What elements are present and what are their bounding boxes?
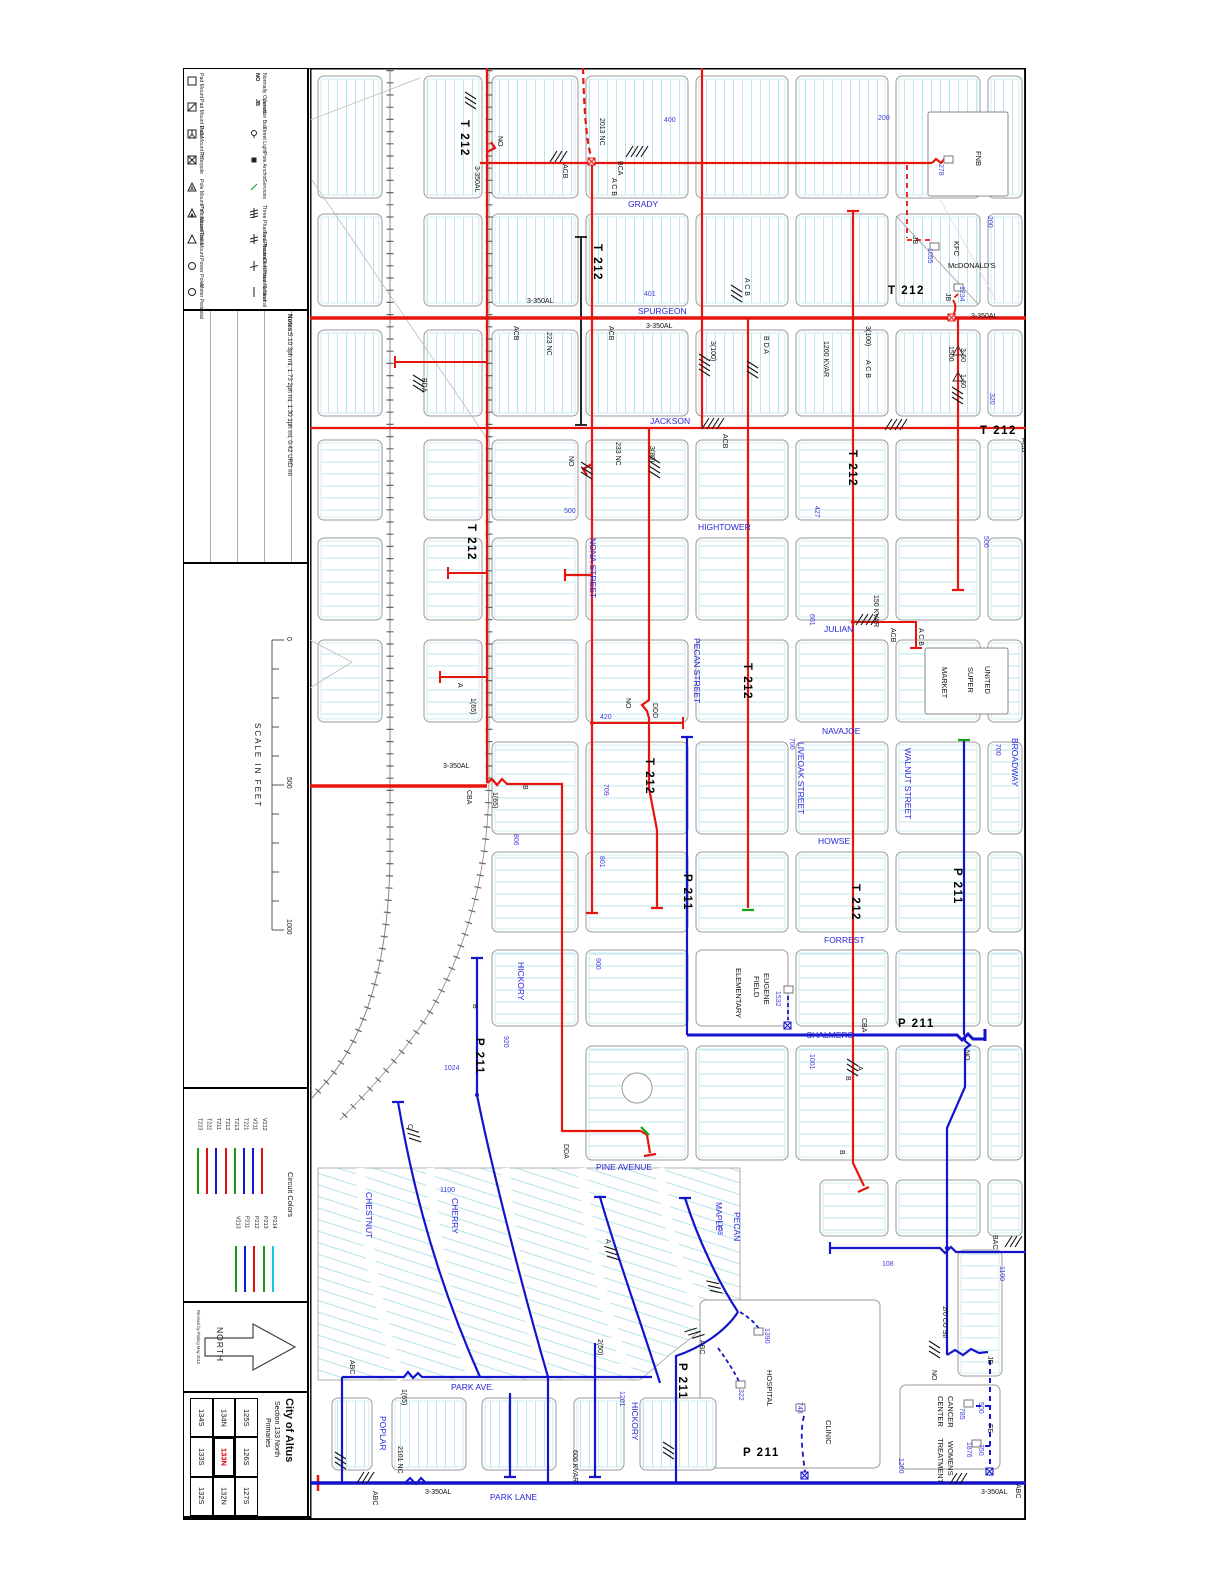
- street-label: SPURGEON: [638, 306, 687, 316]
- street-label: PINE AVENUE: [596, 1162, 652, 1172]
- revision-note: Revised by Plating May 2015: [196, 1310, 201, 1365]
- block-number: 1055: [926, 248, 933, 264]
- circuit-color-label: V212: [260, 1118, 265, 1131]
- street-label: PARK LANE: [490, 1492, 537, 1502]
- legend-item-label: Junction Box: [261, 99, 266, 129]
- circuit-label: T 212: [643, 758, 655, 795]
- annotation: 1200 KVAR: [822, 341, 829, 377]
- legend-item-label: Services: [261, 179, 266, 199]
- block-number: 785: [958, 1408, 965, 1420]
- parcels: [427, 333, 479, 413]
- block-number: 700: [788, 738, 795, 750]
- parcels: [395, 1401, 463, 1467]
- parcels: [495, 541, 575, 617]
- annotation: 3-350AL: [473, 166, 480, 193]
- street-label: HICKORY: [516, 962, 526, 1001]
- parcels: [427, 217, 479, 303]
- parcels: [427, 443, 479, 517]
- parcels: [961, 1253, 999, 1373]
- annotation: A C B: [864, 360, 871, 378]
- block-number: 1100: [440, 1187, 455, 1194]
- legend-symbol-sl: [249, 126, 260, 137]
- scale-title: SCALE IN FEET: [253, 723, 262, 808]
- parcels: [321, 217, 379, 303]
- map-sheet: Notes: 5.10 3ph mi, 1.73 2ph mi, 1.30 1p…: [0, 0, 1224, 1584]
- annotation: NO: [930, 1370, 937, 1381]
- parcels: [899, 333, 977, 413]
- annotation: ACB: [1020, 438, 1026, 453]
- legend-symbol-tri: [187, 231, 198, 242]
- annotation: A C B: [610, 178, 617, 196]
- circuit-label: P 211: [676, 1363, 688, 1400]
- parcels: [991, 1049, 1019, 1157]
- block-number: 601: [808, 614, 815, 626]
- parcels: [495, 217, 575, 303]
- circuit-label: T 212: [458, 120, 470, 157]
- street-label: JACKSON: [650, 416, 690, 426]
- circuit-label: P 211: [743, 1447, 780, 1459]
- legend-symbol-sv: [249, 179, 260, 190]
- legend-symbol-cir: [187, 258, 198, 269]
- section-cell-132S: 132S: [190, 1477, 213, 1516]
- annotation: NO: [567, 456, 574, 467]
- street-label: NAVAJOE: [822, 726, 861, 736]
- annotation: 3-350AL: [443, 763, 470, 770]
- parcels: [699, 1049, 785, 1157]
- circuit-label: P 211: [473, 1038, 485, 1075]
- building-label: KFC: [952, 241, 961, 257]
- parcels: [991, 443, 1019, 517]
- circuit-color-swatch: [272, 1246, 274, 1292]
- parcels: [799, 79, 885, 195]
- parcels: [589, 541, 685, 617]
- sheet-subtitle: Section 133 North: [273, 1401, 280, 1457]
- building-label: FNB: [974, 151, 983, 166]
- building-label: ELEMENTARY: [734, 968, 743, 1018]
- annotation: NO: [624, 698, 631, 709]
- legend-symbol-trid: [187, 205, 198, 216]
- annotation: 3-350AL: [981, 1489, 1008, 1496]
- street-label: WALNUT STREET: [903, 748, 913, 819]
- building-label: CENTER: [936, 1396, 945, 1427]
- street-label: HIGHTOWER: [698, 522, 751, 532]
- circuit-color-swatch: [225, 1148, 227, 1194]
- circuit-color-swatch: [206, 1148, 208, 1194]
- parcels: [899, 1183, 977, 1233]
- annotation: 2101 NC: [396, 1446, 403, 1474]
- parcels: [799, 643, 885, 719]
- street-label: HOWSE: [818, 836, 850, 846]
- block-number: 709: [602, 784, 609, 796]
- block-number: 750: [977, 1444, 984, 1456]
- building-label: UNITED: [983, 666, 992, 695]
- circuit-color-label: T213: [233, 1118, 238, 1130]
- annotation: ABC: [1014, 1484, 1021, 1498]
- annotation: 3(100): [709, 341, 716, 361]
- street-label: JULIAN: [824, 624, 853, 634]
- street-label: PARK AVE.: [451, 1382, 494, 1392]
- circuit-label: T 212: [741, 663, 753, 700]
- annotation: 3-350AL: [527, 298, 554, 305]
- block-number: 278: [937, 164, 944, 176]
- street-label: GRADY: [628, 199, 659, 209]
- legend-symbol-triy: [187, 179, 198, 190]
- circuit-color-label: T211: [214, 1118, 219, 1130]
- parcels: [335, 1401, 369, 1467]
- parcels: [799, 855, 885, 929]
- building-label: EUGENE: [762, 973, 771, 1005]
- legend-item-label: Neutral: [261, 284, 266, 301]
- circuit-color-label: T222: [205, 1118, 210, 1130]
- legend-symbol-cir: [187, 284, 198, 295]
- building-label: MARKET: [940, 667, 949, 699]
- block-number: 1234: [958, 286, 965, 302]
- annotation: A: [456, 683, 463, 688]
- annotation: JB: [911, 236, 918, 245]
- circuit-color-swatch: [252, 1148, 254, 1194]
- street-label: CHERRY: [450, 1198, 460, 1234]
- north-arrow: NORTH Revised by Plating May 2015: [183, 1302, 308, 1391]
- circuit-color-swatch: [235, 1246, 237, 1292]
- parcels: [589, 443, 685, 517]
- annotation: JB: [944, 293, 951, 302]
- section-cell-133S: 133S: [190, 1437, 213, 1476]
- block-number: 700: [994, 744, 1001, 756]
- circuit-color-label: P212: [252, 1216, 257, 1229]
- parcels: [699, 79, 785, 195]
- parcels: [799, 745, 885, 831]
- section-cell-125S: 125S: [235, 1398, 258, 1437]
- annotation: JB: [986, 1356, 993, 1365]
- annotation: 223 NC: [545, 332, 552, 356]
- block-number: 1100: [998, 1266, 1005, 1281]
- annotation: BDA: [420, 378, 427, 393]
- block-number: 1532: [774, 991, 781, 1007]
- section-cell-134S: 134S: [190, 1398, 213, 1437]
- circuit-label: P 211: [898, 1018, 935, 1030]
- annotation: 1-50: [959, 374, 966, 388]
- legend-symbol-sqx: [187, 152, 198, 163]
- street-label: LIVEOAK STREET: [796, 742, 806, 814]
- section-cell-132N: 132N: [213, 1477, 236, 1516]
- circuit-label: P 211: [681, 874, 693, 911]
- block-number: 200: [878, 115, 890, 122]
- annotation: 2013 NC: [598, 118, 605, 146]
- legend-symbol-pa: [249, 152, 260, 163]
- legend-symbol-NO: NO: [249, 73, 260, 84]
- circuit-color-swatch: [234, 1148, 236, 1194]
- parcels: [799, 443, 885, 517]
- annotation: A C B: [743, 278, 750, 296]
- notes: Notes: 5.10 3ph mi, 1.73 2ph mi, 1.30 1p…: [284, 314, 306, 559]
- scale-tick: 0: [285, 637, 292, 641]
- cul-de-sac: [622, 1073, 652, 1103]
- section-cell-127S: 127S: [235, 1477, 258, 1516]
- parcels: [589, 333, 685, 413]
- street-label: NONA STREET: [588, 538, 598, 598]
- building-label: WOMENS: [946, 1441, 955, 1476]
- block-number: 1201: [618, 1391, 625, 1407]
- legend-item-label: Pad Mount: [198, 73, 203, 98]
- scale-tick: 500: [285, 777, 292, 789]
- parcels: [991, 953, 1019, 1023]
- parcels: [321, 443, 379, 517]
- annotation: ABC: [348, 1360, 355, 1374]
- annotation: A: [856, 1066, 863, 1071]
- circuit-color-swatch: [243, 1148, 245, 1194]
- annotation: 3(80): [648, 446, 655, 462]
- annotation: NO: [963, 1050, 970, 1061]
- circuit-label: T 212: [888, 285, 925, 297]
- parcels: [899, 541, 977, 617]
- legend-symbol-h3: [249, 205, 260, 216]
- street-label: PECAN STREET: [692, 638, 702, 703]
- street-label: CHESTNUT: [364, 1192, 374, 1238]
- annotation: 2(50): [596, 1339, 603, 1355]
- street-label: FORREST: [824, 935, 865, 945]
- annotation: CBA: [860, 1018, 867, 1033]
- subdivision-area: [318, 1168, 740, 1380]
- annotation: 1(65): [469, 698, 476, 714]
- building-label: FIELD: [752, 976, 761, 998]
- legend-item-label: Riserpole: [198, 152, 203, 174]
- annotation: 3-350AL: [646, 323, 673, 330]
- block-number: 1390: [763, 1328, 770, 1344]
- annotation: B D A: [762, 336, 769, 354]
- block-number: 500: [982, 536, 989, 548]
- circuit-color-label: T223: [196, 1118, 201, 1130]
- parcels: [799, 333, 885, 413]
- annotation: B: [844, 1076, 851, 1081]
- sheet-type: Primaries: [264, 1418, 271, 1448]
- annotation: 3(100): [864, 326, 871, 346]
- legend-symbol-JB: JB: [249, 99, 260, 110]
- block-number: 400: [664, 117, 676, 124]
- annotation: A C B: [917, 628, 924, 646]
- legend-item-label: Pole Anchor: [261, 152, 266, 180]
- parcels: [495, 643, 575, 719]
- annotation: ACB: [512, 326, 519, 341]
- circuit-label: T 212: [849, 884, 861, 921]
- block-number: 920: [502, 1036, 509, 1048]
- legend-symbol-sqy: [187, 126, 198, 137]
- block-number: 401: [644, 291, 656, 298]
- street-label: CHALMERS: [806, 1030, 854, 1040]
- circuit-color-label: V211: [251, 1118, 256, 1130]
- block-number: 743: [796, 1402, 803, 1414]
- street-label: BROADWAY: [1010, 738, 1020, 787]
- parcels: [495, 333, 575, 413]
- annotation: A: [604, 1239, 611, 1244]
- divider: [183, 1391, 308, 1393]
- notes-title: Notes:: [286, 314, 293, 333]
- block-number: 500: [564, 508, 576, 515]
- parcels: [699, 541, 785, 617]
- parcels: [899, 953, 977, 1023]
- circuit-label: P 211: [951, 868, 963, 905]
- building-label: McDONALD'S: [948, 261, 996, 270]
- parcels: [899, 855, 977, 929]
- parcels: [799, 953, 885, 1023]
- building-label: TREATMENT: [936, 1438, 945, 1484]
- annotation: 1500: [947, 346, 954, 362]
- legend-symbol-sqd: [187, 99, 198, 110]
- section-cell-134N: 134N: [213, 1398, 236, 1437]
- legend-item-label: Power Poles: [198, 258, 203, 287]
- circuit-color-label: P211: [243, 1216, 248, 1228]
- annotation: 1(65): [491, 792, 498, 808]
- annotation: 3-50: [959, 348, 966, 362]
- annotation: 600 KVAR: [571, 1450, 578, 1482]
- annotation: B: [471, 1004, 478, 1009]
- parcels: [495, 443, 575, 517]
- annotation: ACB: [721, 434, 728, 449]
- legend-symbol-h2: [249, 231, 260, 242]
- street-label: HICKORY: [630, 1402, 640, 1441]
- annotation: 2/0 CU Str: [941, 1306, 948, 1339]
- annotation: ACB: [889, 628, 896, 643]
- legend-item-label: Street Light: [261, 126, 266, 153]
- building-label: CANCER: [946, 1396, 955, 1428]
- annotation: ABC: [371, 1491, 378, 1505]
- circuit-label: T 212: [591, 244, 603, 281]
- parcels: [321, 79, 379, 195]
- annotation: C: [406, 1124, 413, 1129]
- annotation: 233 NC: [614, 442, 621, 466]
- sheet-title: City of Altus: [283, 1398, 295, 1462]
- parcels: [589, 643, 685, 719]
- block-number: 900: [594, 958, 601, 970]
- annotation: FE: [986, 1424, 993, 1433]
- parcels: [991, 217, 1019, 303]
- parcels: [991, 855, 1019, 929]
- circuit-label: T 212: [846, 450, 858, 487]
- legend-item-label: Meter Pedestal: [198, 284, 203, 319]
- block-number: 801: [598, 856, 605, 868]
- parcels: [991, 541, 1019, 617]
- circuit-color-swatch: [244, 1246, 246, 1292]
- street-label: PECAN: [732, 1212, 742, 1241]
- circuit-colors-title: Circuit Colors: [286, 1172, 295, 1217]
- parcels: [699, 443, 785, 517]
- legend-symbol-sq: [187, 73, 198, 84]
- circuit-label: T 212: [980, 425, 1017, 437]
- circuit-color-swatch: [197, 1148, 199, 1194]
- block-number: 1200: [897, 1458, 904, 1474]
- annotation: 3-350AL: [425, 1489, 452, 1496]
- notes-value: 5.10 3ph mi, 1.73 2ph mi, 1.30 1ph mi, 0…: [284, 333, 294, 476]
- parcels: [699, 745, 785, 831]
- circuit-color-swatch: [253, 1246, 255, 1292]
- annotation: CBA: [465, 790, 472, 805]
- circuit-color-label: P214: [271, 1216, 276, 1229]
- building-label: SUPER: [966, 667, 975, 693]
- parcels: [643, 1401, 713, 1467]
- parcels: [485, 1401, 553, 1467]
- parcels: [799, 217, 885, 303]
- building-label: CLINIC: [824, 1420, 833, 1445]
- annotation: BCA: [616, 161, 623, 176]
- block-number: 427: [813, 506, 820, 518]
- block-number: 806: [512, 834, 519, 846]
- parcels: [899, 443, 977, 517]
- scale-bar: 0 500 1000 SCALE IN FEET: [183, 563, 308, 1087]
- parcels: [321, 541, 379, 617]
- annotation: 1(65): [400, 1389, 407, 1405]
- block-number: 200: [986, 216, 993, 228]
- north-label: NORTH: [215, 1327, 225, 1362]
- circuit-color-label: T221: [242, 1118, 247, 1130]
- annotation: DDD: [651, 703, 658, 718]
- parcels: [699, 217, 785, 303]
- parcels: [823, 1183, 885, 1233]
- block-number: 108: [882, 1261, 894, 1268]
- parcels: [991, 1183, 1019, 1233]
- parcels: [589, 953, 685, 1023]
- annotation: ABC: [698, 1340, 705, 1354]
- parcels: [321, 333, 379, 413]
- fnb-building: [928, 112, 1008, 196]
- legend-symbol-h1: [249, 258, 260, 269]
- annotation: ACB: [607, 326, 614, 341]
- section-cell-133N: 133N: [213, 1437, 236, 1476]
- circuit-label: T 212: [465, 524, 477, 561]
- block-number: 1024: [444, 1065, 460, 1072]
- annotation: B: [521, 785, 528, 790]
- circuit-color-label: T212: [224, 1118, 229, 1130]
- circuit-color-label: P213: [262, 1216, 267, 1229]
- parcels: [577, 1401, 621, 1467]
- block-number: 1108: [716, 1220, 723, 1235]
- block-number: 322: [737, 1389, 744, 1401]
- block-number: 320: [988, 393, 995, 405]
- circuit-color-swatch: [263, 1246, 265, 1292]
- circuit-color-label: V213: [234, 1216, 239, 1229]
- section-cell-126S: 126S: [235, 1437, 258, 1476]
- circuit-color-swatch: [261, 1148, 263, 1194]
- annotation: B: [838, 1150, 845, 1155]
- map-canvas: GRADYSPURGEONJACKSONHIGHTOWERJULIANNAVAJ…: [310, 68, 1026, 1520]
- legend-symbol-nl: [249, 284, 260, 295]
- annotation: NO: [496, 136, 503, 147]
- scale-tick: 1000: [285, 919, 292, 935]
- parcels: [699, 855, 785, 929]
- building-label: HOSPITAL: [765, 1370, 774, 1407]
- block-number: 1876: [965, 1442, 972, 1458]
- divider: [183, 1087, 308, 1089]
- legend-item-label: Pole Mount: [198, 231, 203, 257]
- block-number: 500: [977, 1402, 984, 1414]
- annotation: ACB: [561, 164, 568, 179]
- street-label: POPLAR: [378, 1416, 388, 1451]
- circuit-color-swatch: [215, 1148, 217, 1194]
- annotation: 150 KVAR: [872, 595, 879, 627]
- parcels: [321, 643, 379, 719]
- annotation: DDA: [562, 1144, 569, 1159]
- block-number: 420: [600, 714, 612, 721]
- annotation: 3-350AL: [971, 313, 998, 320]
- annotation: BAC: [991, 1235, 998, 1249]
- block-number: 1001: [808, 1054, 815, 1070]
